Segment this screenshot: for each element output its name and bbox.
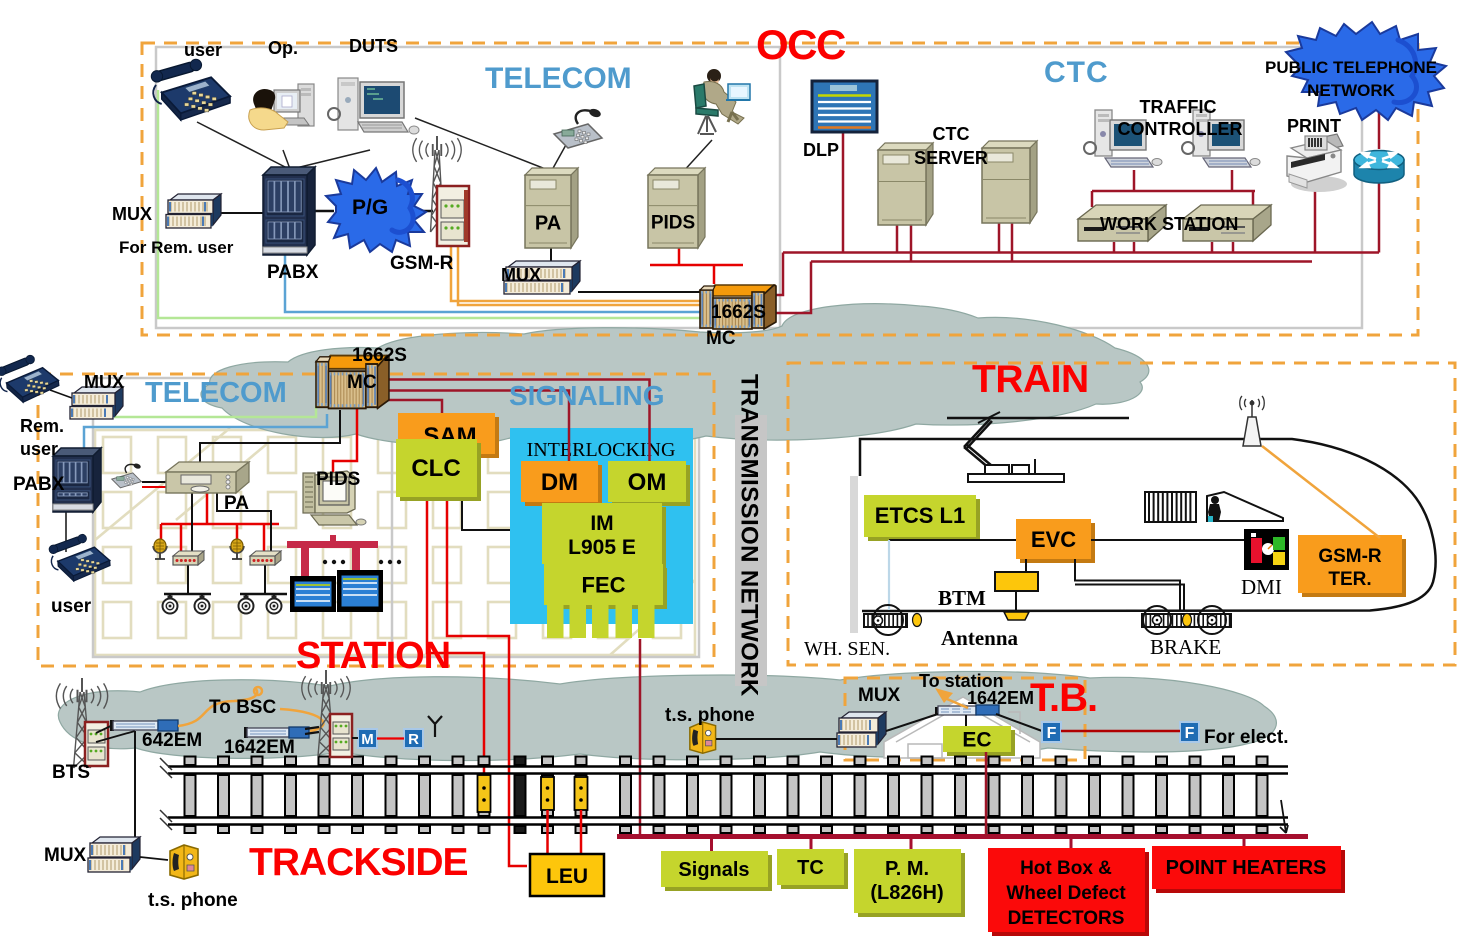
svg-text:MC: MC xyxy=(706,328,736,349)
svg-text:LEU: LEU xyxy=(546,865,588,888)
svg-text:WH. SEN.: WH. SEN. xyxy=(804,638,890,660)
svg-text:DMI: DMI xyxy=(1241,575,1282,599)
svg-text:DUTS: DUTS xyxy=(349,36,398,56)
svg-text:t.s. phone: t.s. phone xyxy=(148,890,238,911)
svg-text:PA: PA xyxy=(535,213,561,235)
svg-text:CTC: CTC xyxy=(933,124,970,144)
svg-text:MUX: MUX xyxy=(112,204,152,224)
svg-text:To BSC: To BSC xyxy=(209,697,276,718)
svg-text:OM: OM xyxy=(628,469,667,496)
svg-text:MUX: MUX xyxy=(84,372,124,392)
svg-text:CONTROLLER: CONTROLLER xyxy=(1118,119,1243,139)
svg-text:PABX: PABX xyxy=(13,474,65,495)
svg-text:M: M xyxy=(361,731,374,748)
svg-text:PUBLIC TELEPHONE: PUBLIC TELEPHONE xyxy=(1265,58,1437,77)
svg-text:CTC: CTC xyxy=(1044,56,1109,89)
svg-text:STATION: STATION xyxy=(296,635,450,677)
svg-text:TELECOM: TELECOM xyxy=(145,377,287,409)
svg-text:L905 E: L905 E xyxy=(568,536,636,559)
svg-text:1662S: 1662S xyxy=(352,345,407,366)
svg-text:Op.: Op. xyxy=(268,38,298,58)
svg-text:DETECTORS: DETECTORS xyxy=(1008,908,1125,929)
svg-text:user: user xyxy=(51,596,92,617)
svg-text:TRACKSIDE: TRACKSIDE xyxy=(249,841,468,884)
svg-text:SIGNALING: SIGNALING xyxy=(509,380,665,411)
svg-text:TELECOM: TELECOM xyxy=(485,62,632,95)
svg-text:For Rem. user: For Rem. user xyxy=(119,238,234,257)
svg-text:t.s. phone: t.s. phone xyxy=(665,705,755,726)
svg-text:1642EM: 1642EM xyxy=(224,737,295,758)
svg-text:MC: MC xyxy=(347,372,377,393)
svg-text:DM: DM xyxy=(541,469,578,496)
svg-text:PIDS: PIDS xyxy=(651,212,695,233)
svg-text:Rem.: Rem. xyxy=(20,416,64,436)
svg-text:INTERLOCKING: INTERLOCKING xyxy=(527,439,676,461)
svg-text:GSM-R: GSM-R xyxy=(1318,546,1382,567)
svg-text:P/G: P/G xyxy=(352,196,388,219)
svg-text:PRINT: PRINT xyxy=(1287,116,1341,136)
svg-text:user: user xyxy=(184,40,222,60)
svg-text:TRANSMISSION NETWORK: TRANSMISSION NETWORK xyxy=(736,374,763,697)
svg-text:OCC: OCC xyxy=(756,21,846,68)
svg-text:ETCS L1: ETCS L1 xyxy=(875,503,965,528)
svg-text:MUX: MUX xyxy=(858,685,901,706)
svg-text:MUX: MUX xyxy=(44,845,87,866)
svg-text:1642EM: 1642EM xyxy=(967,688,1034,708)
svg-text:CLC: CLC xyxy=(411,455,460,482)
svg-text:BRAKE: BRAKE xyxy=(1150,635,1221,659)
svg-text:FEC: FEC xyxy=(582,572,626,597)
svg-text:F: F xyxy=(1185,725,1195,742)
svg-text:Antenna: Antenna xyxy=(941,626,1019,650)
svg-text:SERVER: SERVER xyxy=(914,148,988,168)
svg-text:Wheel Defect: Wheel Defect xyxy=(1006,883,1126,904)
svg-text:PA: PA xyxy=(224,493,249,514)
svg-text:EC: EC xyxy=(962,729,991,752)
svg-text:GSM-R: GSM-R xyxy=(390,253,454,274)
svg-text:T.B.: T.B. xyxy=(1030,676,1097,720)
svg-text:WORK STATION: WORK STATION xyxy=(1100,214,1238,234)
svg-text:DLP: DLP xyxy=(803,140,839,160)
svg-text:TRAFFIC: TRAFFIC xyxy=(1140,97,1217,117)
svg-text:POINT HEATERS: POINT HEATERS xyxy=(1166,857,1327,879)
svg-text:PIDS: PIDS xyxy=(316,469,360,490)
svg-text:user: user xyxy=(20,439,58,459)
svg-text:For elect.: For elect. xyxy=(1204,727,1288,748)
svg-text:BTM: BTM xyxy=(938,586,986,610)
svg-text:(L826H): (L826H) xyxy=(870,882,943,904)
svg-text:Hot Box &: Hot Box & xyxy=(1020,858,1112,879)
svg-text:1662S: 1662S xyxy=(711,302,766,323)
svg-text:TC: TC xyxy=(797,857,824,879)
svg-text:IM: IM xyxy=(590,512,613,535)
svg-text:TRAIN: TRAIN xyxy=(972,358,1089,401)
svg-text:BTS: BTS xyxy=(52,762,90,783)
svg-text:Signals: Signals xyxy=(678,859,749,881)
svg-text:P. M.: P. M. xyxy=(885,858,929,880)
svg-text:642EM: 642EM xyxy=(142,730,202,751)
svg-text:TER.: TER. xyxy=(1328,569,1371,590)
svg-text:R: R xyxy=(408,731,419,748)
svg-text:F: F xyxy=(1047,725,1057,742)
svg-text:MUX: MUX xyxy=(501,265,541,285)
svg-text:PABX: PABX xyxy=(267,262,319,283)
svg-text:NETWORK: NETWORK xyxy=(1307,81,1396,100)
svg-text:EVC: EVC xyxy=(1031,527,1076,552)
